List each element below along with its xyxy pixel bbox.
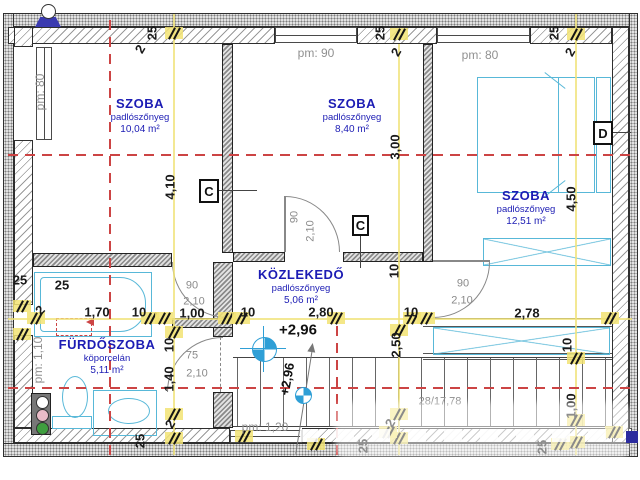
level-label: +2,96 <box>278 362 297 397</box>
dim-label: 25 <box>374 26 387 40</box>
dim-label: 2,10 <box>183 297 204 308</box>
room-area: 5,11 m² <box>90 365 123 376</box>
stair-tread <box>237 358 238 426</box>
room-name: FÜRDŐSZOBA <box>59 337 156 352</box>
dim-chain-guide <box>398 44 400 455</box>
insulation-layer <box>3 13 14 457</box>
room-area: 5,06 m² <box>284 295 318 306</box>
window-height-label: pm: 90 <box>298 47 335 59</box>
window-height-label: pm: 1,10 <box>32 337 44 384</box>
dim-tick <box>390 28 408 40</box>
dim-label: 1,70 <box>84 306 109 319</box>
wall-white-dashes <box>300 429 620 442</box>
dim-label: 4,10 <box>164 174 177 199</box>
interior-wall <box>423 44 433 262</box>
dim-label: 10 <box>132 306 146 319</box>
dim-label: 25 <box>548 26 561 40</box>
stack-circle-green <box>36 422 49 435</box>
bed-fold-line <box>558 78 559 192</box>
stair-arrow-head <box>307 342 316 352</box>
stair-tread <box>260 358 261 426</box>
exterior-wall <box>14 27 33 47</box>
stair-edge <box>233 357 612 358</box>
room-name: SZOBA <box>116 96 164 111</box>
dim-label: 2,78 <box>514 307 539 320</box>
interior-wall <box>213 392 233 428</box>
dim-label: 25 <box>146 26 159 40</box>
exterior-wall <box>612 27 629 443</box>
wardrobe-crossed <box>483 238 611 266</box>
room-name: SZOBA <box>328 96 376 111</box>
dim-label: 25 <box>134 434 147 448</box>
interior-wall <box>222 44 233 253</box>
dim-tick <box>165 326 183 338</box>
room-label: SZOBApadlószőnyeg8,40 m² <box>323 96 382 135</box>
stair-tread <box>329 358 330 426</box>
room-label: KÖZLEKEDŐpadlószőnyeg5,06 m² <box>258 267 344 306</box>
dim-label: 10 <box>241 306 255 319</box>
door-swing-arc <box>433 262 490 318</box>
dim-label: 2 <box>133 43 148 56</box>
toilet-tank <box>52 416 92 429</box>
dim-tick <box>165 27 183 39</box>
room-label: SZOBApadlószőnyeg10,04 m² <box>111 96 170 135</box>
room-area: 10,04 m² <box>120 124 159 135</box>
room-material: padlószőnyeg <box>323 112 382 123</box>
insulation-layer <box>8 13 632 27</box>
interior-wall <box>233 252 285 262</box>
dim-tick <box>417 312 435 324</box>
exterior-wall <box>8 27 275 44</box>
room-name: SZOBA <box>502 188 550 203</box>
axis-line <box>8 154 632 156</box>
dim-tick <box>13 328 31 340</box>
vent-symbol-circle <box>41 4 56 19</box>
stack-circle-white <box>36 396 49 409</box>
room-material: köporcelán <box>84 353 130 364</box>
bed-outline <box>477 77 595 193</box>
window-height-label: pm: 1,20 <box>242 421 289 433</box>
dim-tick <box>567 352 585 364</box>
dim-label: 90 <box>457 279 469 290</box>
door-leaf <box>220 337 222 392</box>
dim-label: 90 <box>186 281 198 292</box>
dim-label: 10 <box>163 338 176 352</box>
room-material: padlószőnyeg <box>497 204 556 215</box>
door-leaf <box>433 260 490 262</box>
level-marker <box>295 387 312 404</box>
dim-label: 1,00 <box>179 307 204 320</box>
dim-label: 25 <box>13 274 27 287</box>
interior-wall <box>33 253 172 267</box>
dim-label: 10 <box>404 306 418 319</box>
dim-label: 2,80 <box>308 306 333 319</box>
room-area: 12,51 m² <box>506 216 545 227</box>
dim-label: 2,50 <box>390 332 403 357</box>
level-marker-cross <box>263 326 264 372</box>
logo-mark <box>626 431 638 443</box>
section-leader <box>360 236 361 268</box>
sink-basin <box>108 398 150 424</box>
room-material: padlószőnyeg <box>272 283 331 294</box>
section-leader <box>613 132 631 133</box>
floor-plan: 2522522524,103,004,50252521,70101,00102,… <box>0 0 640 480</box>
axis-line <box>109 14 111 455</box>
window-height-label: pm: 80 <box>462 49 499 61</box>
room-label: FÜRDŐSZOBAköporcelán5,11 m² <box>59 337 156 376</box>
section-leader <box>219 190 257 191</box>
window <box>437 27 530 43</box>
dim-label: 25 <box>55 279 69 292</box>
section-mark-C: C <box>199 179 219 203</box>
dim-tick <box>155 312 173 324</box>
dim-tick <box>567 28 585 40</box>
level-label: +2,96 <box>279 323 317 338</box>
dim-label: 90 <box>290 211 301 223</box>
dim-tick <box>13 300 31 312</box>
window <box>275 27 357 43</box>
section-mark-C: C <box>352 215 369 236</box>
dim-tick <box>601 312 619 324</box>
axis-line <box>8 387 632 389</box>
door-leaf <box>284 196 286 252</box>
window-height-label: pm: 80 <box>34 74 46 111</box>
stack-circle-pink <box>36 409 49 422</box>
dim-tick <box>165 432 183 444</box>
section-mark-D: D <box>593 121 613 145</box>
insulation-layer <box>629 13 638 457</box>
dim-label: 2,10 <box>451 296 472 307</box>
toilet-bowl <box>62 376 88 418</box>
dim-label: 1,40 <box>163 366 176 391</box>
room-label: SZOBApadlószőnyeg12,51 m² <box>497 188 556 227</box>
dim-label: 2,10 <box>306 220 317 241</box>
room-material: padlószőnyeg <box>111 112 170 123</box>
interior-wall <box>343 252 423 262</box>
room-name: KÖZLEKEDŐ <box>258 267 344 282</box>
dim-label: 2 <box>389 46 404 59</box>
dim-label: 10 <box>388 264 401 278</box>
dim-label: 2,10 <box>186 369 207 380</box>
dim-label: 75 <box>186 351 198 362</box>
dim-label: 4,50 <box>565 186 578 211</box>
level-marker <box>252 337 277 362</box>
room-area: 8,40 m² <box>335 124 369 135</box>
dim-label: 10 <box>561 338 574 352</box>
wardrobe-crossed <box>433 327 610 355</box>
dim-label: 3,00 <box>389 134 402 159</box>
